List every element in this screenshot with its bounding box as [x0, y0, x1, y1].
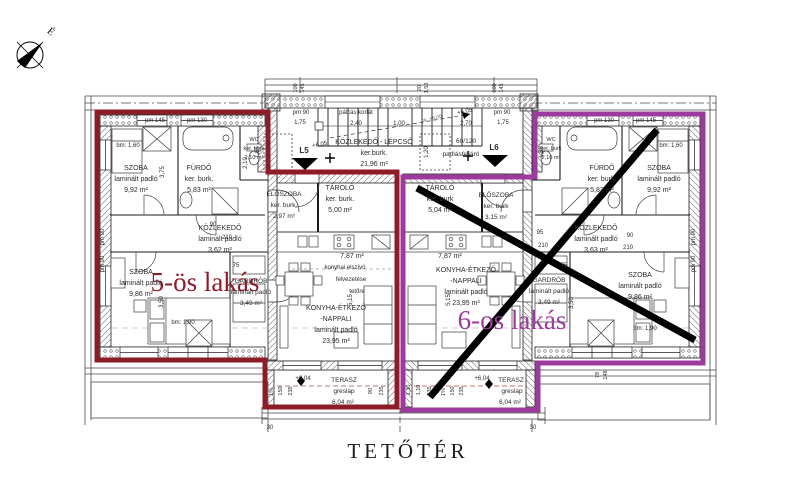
dim-label: pm 130	[187, 118, 208, 124]
dim-label: 210	[623, 245, 634, 251]
dim-label: 150	[450, 386, 456, 395]
dim-label: tetőre	[349, 289, 365, 295]
room-label: ELŐSZOBA	[478, 190, 514, 199]
room-label: FÜRDŐ	[590, 163, 615, 172]
room-label: ker. burk	[427, 196, 454, 203]
room-label: laminált padló	[231, 289, 271, 296]
dim-label: greslap	[333, 388, 355, 395]
room-label: 9,92 m²	[647, 187, 671, 194]
dim-label: 20	[417, 85, 423, 91]
room-label: laminált padló	[618, 283, 661, 290]
room-label: WC	[546, 137, 555, 143]
dim-label: felvezetése	[336, 277, 367, 283]
room-label: 9,86 m²	[628, 294, 652, 301]
dim-label: 210	[538, 243, 549, 249]
dim-label: 6,04 m²	[332, 399, 355, 406]
dim-label: bm: 1,60	[659, 143, 683, 149]
room-label: laminált padló	[114, 176, 157, 183]
dim-label: TERASZ	[331, 377, 357, 384]
room-label: 3,63 m²	[584, 247, 608, 254]
dim-label: 1%	[441, 388, 447, 396]
room-label: KONYHA-ÉTKEZŐ	[436, 265, 496, 274]
dim-label: 2,10	[243, 157, 249, 169]
room-label: ker. burk.	[588, 176, 617, 183]
room-label: -NAPPALI	[320, 316, 351, 323]
dim-label: pálcás korlát	[339, 110, 373, 116]
room-label: ker. burk.	[185, 176, 214, 183]
room-label: ker.burk.	[361, 150, 388, 157]
dim-label: 2,70	[460, 121, 472, 127]
floorplan-page: É 5-ös lakás 6-os lakás SZOBAlaminált pa…	[0, 0, 800, 480]
room-label: SZOBA	[628, 272, 652, 279]
dim-label: 100	[293, 83, 299, 92]
dim-label: padlásfeljáró	[443, 151, 480, 158]
room-label: 23,95 m²	[452, 300, 480, 307]
dim-label: 3,50	[569, 297, 575, 309]
dim-label: 1,00	[393, 121, 405, 127]
dim-label: 90	[210, 222, 217, 228]
room-label: SZOBA	[647, 165, 671, 172]
dim-label: pm 90	[100, 255, 106, 272]
room-label: laminált padló	[637, 176, 680, 183]
room-label: ker. burk.	[326, 196, 355, 203]
dim-label: 145	[300, 83, 306, 92]
floorplan-drawing: É 5-ös lakás 6-os lakás SZOBAlaminált pa…	[0, 0, 800, 480]
room-label: SZOBA	[124, 165, 148, 172]
survey-cross	[325, 153, 335, 163]
stair-top-wall	[265, 96, 537, 108]
dim-label: konyhai elszívó	[324, 265, 366, 271]
dim-label: pm 90	[100, 228, 106, 245]
room-label: laminált padló	[119, 280, 162, 287]
room-label: 23,95 m²	[322, 338, 350, 345]
room-label: ELŐSZOBA	[266, 189, 302, 198]
dim-label: 148	[603, 370, 609, 379]
dim-label: greslap	[501, 388, 523, 395]
room-label: ker. burk.	[271, 202, 298, 209]
room-label: 5,83 m²	[187, 187, 211, 194]
dim-label: 235	[379, 386, 385, 395]
dim-label: 145	[499, 83, 505, 92]
floor-title: TETŐTÉR	[347, 439, 468, 463]
dim-label: 1,10	[416, 385, 422, 396]
dim-label: 1,20	[424, 146, 430, 158]
dim-label: 1,50	[424, 83, 430, 94]
dim-label: 75	[561, 263, 568, 269]
room-label: 3,49 m²	[538, 299, 561, 306]
room-label: 9,86 m²	[129, 291, 153, 298]
room-label: KÖZLEKEDŐ	[199, 223, 242, 232]
level-marker-L5	[292, 158, 318, 170]
room-label: 3,15 m²	[485, 214, 508, 221]
dim-label: pm 90	[691, 228, 697, 245]
dim-label: 30	[530, 425, 537, 431]
room-label: WC	[249, 137, 258, 143]
dim-label: L5	[299, 146, 309, 155]
room-label: SZOBA	[129, 269, 153, 276]
dim-label: 60/120	[456, 138, 476, 145]
dim-label: 90	[627, 233, 634, 239]
room-label: GARDRÓB	[235, 276, 268, 285]
room-label: 21,96 m²	[360, 161, 388, 168]
room-label: 3,62 m²	[208, 247, 232, 254]
dim-label: 6,04 m²	[499, 399, 522, 406]
room-label: KÖZLEKEDŐ	[575, 223, 618, 232]
room-label: KONYHA-ÉTKEZŐ	[306, 303, 366, 312]
compass-north-label: É	[45, 25, 57, 38]
room-label: TÁROLÓ	[326, 183, 355, 192]
dim-label: 7,87 m²	[340, 253, 364, 260]
dim-label: 5,15	[348, 294, 354, 306]
dim-label: 30	[267, 425, 274, 431]
room-label: 3,49 m²	[240, 300, 263, 307]
stair-newel	[315, 122, 323, 130]
apartment-6-label: 6-os lakás	[458, 305, 567, 335]
dim-label: 75	[233, 263, 240, 269]
room-label: GARDRÓB	[533, 275, 566, 284]
dim-label: L6	[489, 143, 499, 152]
room-label: 5,00 m²	[328, 207, 352, 214]
dim-label: 235	[459, 386, 465, 395]
dim-label: 2,40	[350, 121, 362, 127]
dim-label: bm: 1,90	[171, 320, 195, 326]
dim-label: 235	[288, 386, 294, 395]
dim-label: 235	[427, 386, 433, 395]
room-label: laminált padló	[314, 327, 357, 334]
dim-label: 210	[222, 235, 233, 241]
room-label: KÖZLEKEDŐ - LÉPCSŐ	[335, 137, 413, 146]
room-label: FÜRDŐ	[187, 163, 212, 172]
dim-label: 1,75	[294, 120, 306, 126]
dim-label: 1%	[269, 388, 275, 396]
room-label: 2,97 m²	[273, 213, 296, 220]
dim-label: +6,04	[474, 376, 490, 382]
dim-label: pm 90	[691, 255, 697, 272]
room-label: 5,83 m²	[590, 187, 614, 194]
dim-label: 3,50	[159, 296, 165, 308]
dim-label: bm: 1,60	[116, 143, 140, 149]
dim-label: pm 90	[494, 110, 511, 116]
room-label: laminált padló	[529, 288, 569, 295]
room-label: TÁROLÓ	[426, 183, 455, 192]
room-label: 9,92 m²	[124, 187, 148, 194]
dim-label: pm 130	[594, 118, 615, 124]
dim-label: +6,04	[295, 376, 311, 382]
dim-label: 78	[595, 372, 601, 378]
room-label: -NAPPALI	[450, 278, 481, 285]
dim-label: 95	[537, 230, 544, 236]
stairwell	[264, 96, 537, 170]
room-label: ker. burk	[484, 203, 510, 210]
dim-label: 3,75	[160, 166, 166, 178]
room-label: laminált padló	[574, 236, 617, 243]
dim-label: 100	[492, 83, 498, 92]
dim-label: 1,75	[497, 120, 509, 126]
dim-label: 5,15	[446, 294, 452, 306]
dim-label: 90	[368, 388, 374, 394]
compass-icon: É	[17, 25, 57, 68]
dim-label: TERASZ	[498, 377, 524, 384]
dim-label: pm 90	[293, 110, 310, 116]
dim-label: 1,30	[406, 385, 412, 396]
dim-label: 150	[278, 386, 284, 395]
room-label: 5,04 m²	[428, 207, 452, 214]
dim-label: bm: 1,90	[633, 326, 657, 332]
level-marker-L6	[482, 155, 508, 167]
dim-label: pm 145	[636, 118, 657, 124]
dim-label: 1,55	[255, 146, 261, 158]
dim-label: 7,87 m²	[438, 253, 462, 260]
room-label: laminált padló	[198, 236, 241, 243]
dim-label: pm 145	[145, 118, 166, 124]
dim-label: 1,55	[539, 146, 545, 158]
dim-label: +6,05	[312, 141, 329, 150]
